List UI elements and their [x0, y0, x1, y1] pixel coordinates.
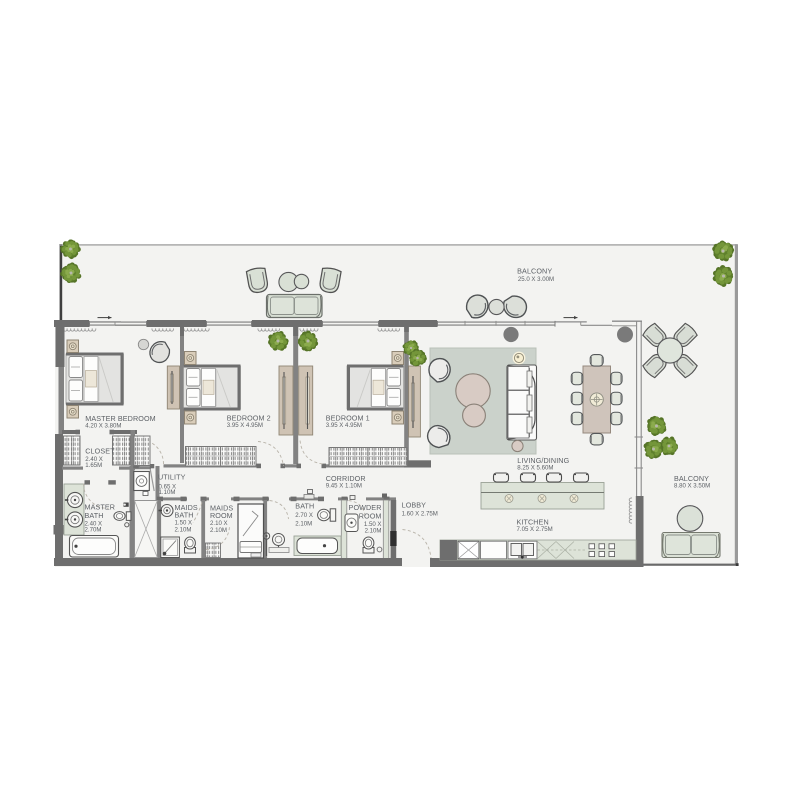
svg-text:8.25 X 5.60M: 8.25 X 5.60M	[517, 465, 553, 472]
svg-text:3.95 X 4.95M: 3.95 X 4.95M	[227, 422, 263, 429]
svg-text:1.10M: 1.10M	[159, 489, 176, 496]
svg-text:2.10M: 2.10M	[365, 528, 382, 535]
svg-text:1.65M: 1.65M	[85, 462, 102, 469]
svg-text:9.45 X 1.10M: 9.45 X 1.10M	[326, 482, 362, 489]
svg-text:LOBBY: LOBBY	[402, 501, 427, 510]
svg-text:4.20 X 3.80M: 4.20 X 3.80M	[85, 422, 121, 429]
svg-text:2.10M: 2.10M	[210, 527, 227, 534]
svg-text:BATH: BATH	[295, 501, 314, 510]
svg-text:BATH: BATH	[175, 511, 194, 520]
svg-text:BALCONY: BALCONY	[517, 267, 552, 276]
svg-text:2.10 X: 2.10 X	[210, 520, 228, 527]
svg-text:ROOM: ROOM	[359, 511, 382, 520]
svg-text:2.10M: 2.10M	[295, 520, 312, 527]
svg-text:ROOM: ROOM	[210, 511, 233, 520]
svg-text:CLOSET: CLOSET	[85, 447, 115, 456]
svg-text:UTILITY: UTILITY	[158, 473, 186, 482]
svg-text:8.80 X 3.50M: 8.80 X 3.50M	[674, 482, 710, 489]
svg-text:25.0 X 3.00M: 25.0 X 3.00M	[518, 276, 554, 283]
svg-text:2.70 X: 2.70 X	[295, 512, 313, 519]
svg-text:1.60 X 2.75M: 1.60 X 2.75M	[402, 511, 438, 518]
svg-text:1.50 X: 1.50 X	[175, 520, 193, 527]
svg-text:7.05 X 2.75M: 7.05 X 2.75M	[517, 526, 553, 533]
svg-text:2.10M: 2.10M	[175, 527, 192, 534]
svg-text:BATH: BATH	[85, 511, 104, 520]
svg-text:2.70M: 2.70M	[85, 527, 102, 534]
svg-text:3.95 X 4.95M: 3.95 X 4.95M	[326, 422, 362, 429]
